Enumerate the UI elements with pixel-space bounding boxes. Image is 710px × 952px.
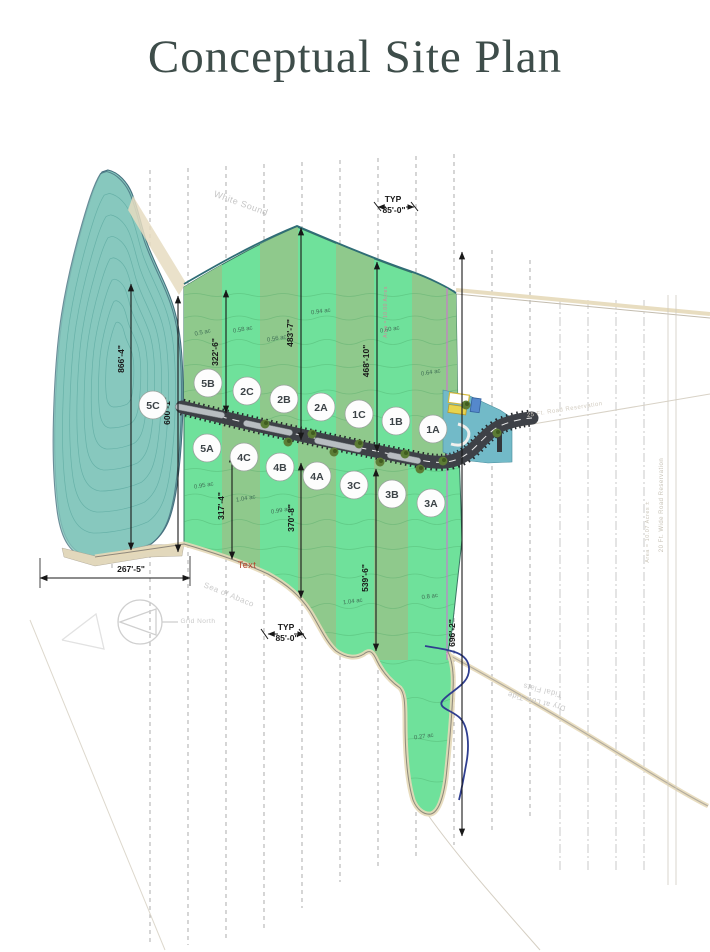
tree-icon — [308, 430, 317, 439]
lot-marker: 2C — [233, 377, 261, 405]
lot-id: 1C — [352, 409, 366, 421]
lot-id: 4C — [237, 452, 251, 464]
tree-icon — [416, 465, 425, 474]
annotation-label: Text — [238, 560, 257, 570]
lot-id: 3A — [424, 498, 438, 510]
lot-marker: 3B — [378, 480, 406, 508]
lot-marker: 5B — [194, 369, 222, 397]
lot-marker: 3A — [417, 489, 445, 517]
lot-id: 2C — [240, 386, 254, 398]
lot-marker: 2A — [307, 393, 335, 421]
lot-marker: 4B — [266, 453, 294, 481]
lot-marker: 4C — [230, 443, 258, 471]
annotation-label: 25 Ft. Road Reservation — [527, 401, 604, 419]
lot-id: 3C — [347, 480, 361, 492]
lot-id: 5C — [146, 400, 160, 412]
lot-marker: 1B — [382, 407, 410, 435]
compass-icon — [62, 600, 178, 649]
lot-id: 1A — [426, 424, 440, 436]
dimension-text: 539'-6" — [360, 564, 370, 592]
lot-id: 1B — [389, 416, 403, 428]
lot-marker: 3C — [340, 471, 368, 499]
tree-icon — [261, 420, 270, 429]
annotation-label: 20 Ft. Wide Road Reservation — [659, 458, 665, 552]
lot-marker: 5A — [193, 434, 221, 462]
lot-id: 5B — [201, 378, 215, 390]
typ-callout: TYP85'-0" — [382, 194, 405, 215]
top-boundary-line — [456, 294, 710, 318]
dimension-text: 317'-4" — [216, 492, 226, 520]
annotation-label: Area = 10.00 Acres — [383, 286, 389, 338]
lot-id: 5A — [200, 443, 214, 455]
tree-icon — [330, 448, 339, 457]
lot-id: 2B — [277, 394, 291, 406]
svg-text:TYP: TYP — [278, 622, 295, 632]
lot-marker: 5C — [139, 391, 167, 419]
dimension-text: 322'-6" — [210, 338, 220, 366]
svg-text:85'-0": 85'-0" — [275, 633, 298, 643]
tree-icon — [493, 429, 502, 438]
tree-icon — [462, 401, 471, 410]
site-plan-drawing: 866'-4"600'-1"322'-6"483'-7"468'-10"317'… — [0, 0, 710, 952]
tree-icon — [401, 450, 410, 459]
svg-text:TYP: TYP — [385, 194, 402, 204]
lot-id: 3B — [385, 489, 399, 501]
lot-marker: 1A — [419, 415, 447, 443]
lot-id: 4B — [273, 462, 287, 474]
annotation-label: Sea of Abaco — [202, 580, 255, 608]
shore-line-tip — [428, 815, 540, 950]
lot-id: 2A — [314, 402, 328, 414]
dimension-text: 267'-5" — [117, 564, 145, 574]
lot-marker: 4A — [303, 462, 331, 490]
lot-marker: 2B — [270, 385, 298, 413]
dimension: 267'-5" — [40, 564, 190, 578]
tree-icon — [439, 457, 448, 466]
svg-text:85'-0": 85'-0" — [382, 205, 405, 215]
dimension-text: 696'-2" — [447, 619, 457, 647]
lot-marker: 1C — [345, 400, 373, 428]
typ-callout: TYP85'-0" — [275, 622, 298, 643]
annotation-label: Area = 10.07 Acres ± — [645, 501, 651, 562]
dimension-text: 483'-7" — [285, 319, 295, 347]
tree-icon — [376, 458, 385, 467]
dimension-text: 866'-4" — [116, 345, 126, 373]
dune-line-left — [30, 620, 165, 950]
tree-icon — [284, 438, 293, 447]
tree-icon — [355, 440, 364, 449]
annotation-label: White Sound — [213, 189, 270, 218]
dimension-text: 468'-10" — [361, 345, 371, 378]
annotation-label: Grid North — [181, 618, 216, 625]
beach-band-right — [456, 290, 710, 314]
site-plan-page: Conceptual Site Plan — [0, 0, 710, 952]
lot-id: 4A — [310, 471, 324, 483]
